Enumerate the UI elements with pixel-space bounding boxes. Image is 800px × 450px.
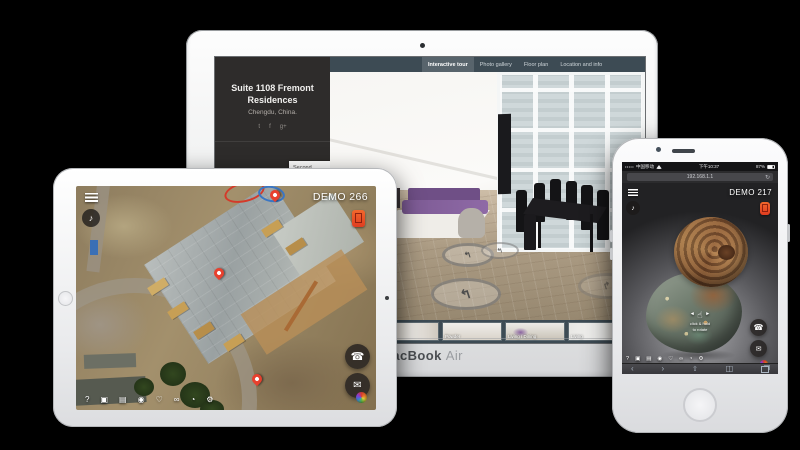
vr-goggles-icon[interactable]: ▣ <box>100 395 108 404</box>
signal-dots: ••••• <box>625 165 634 169</box>
phone-icon: ☎ <box>754 323 764 332</box>
settings-gear-icon[interactable]: ⚙ <box>206 395 213 404</box>
compass-icon[interactable]: ◔ <box>190 395 195 404</box>
webcam-dot <box>420 43 425 48</box>
volume-down-button[interactable] <box>610 248 613 260</box>
wifi-icon <box>656 165 662 169</box>
right-arrow-icon: ► <box>705 311 710 317</box>
ipad-camera-dot <box>385 296 389 300</box>
battery-icon <box>767 165 775 169</box>
hotspot-arrow-icon: ↰ <box>496 246 504 255</box>
site-shed <box>84 353 136 369</box>
nav-hotspot[interactable]: ↰ <box>431 278 501 310</box>
ipad-home-button[interactable] <box>58 291 73 306</box>
forward-icon[interactable]: › <box>661 365 664 373</box>
google-plus-icon[interactable]: g+ <box>280 124 287 130</box>
music-note-icon: ♪ <box>631 205 635 212</box>
tabs-icon[interactable] <box>761 366 769 373</box>
table-leg <box>590 214 593 252</box>
nav-hotspot[interactable]: ↰ <box>481 242 519 259</box>
color-sphere-icon[interactable] <box>356 392 367 403</box>
back-icon[interactable]: ‹ <box>631 365 634 373</box>
brand-text-light: Air <box>446 348 463 363</box>
phone-button[interactable]: ☎ <box>750 319 767 336</box>
iphone-speaker <box>672 149 695 153</box>
hand-pointer-icon: ☝ <box>697 310 702 320</box>
share-link-icon[interactable]: ∞ <box>174 395 180 404</box>
twitter-icon[interactable]: t <box>258 124 260 130</box>
vr-goggles-icon[interactable]: ▣ <box>635 356 640 362</box>
camera-icon[interactable]: ◉ <box>657 356 662 362</box>
phone-button[interactable]: ☎ <box>345 344 370 369</box>
dining-chair <box>524 214 536 250</box>
share-link-icon[interactable]: ∞ <box>679 356 683 362</box>
favorite-heart-icon[interactable]: ♡ <box>156 395 163 404</box>
sidebar-divider <box>215 141 330 142</box>
ram-horn-spiral <box>674 217 748 287</box>
clock-label: 下午10:37 <box>664 164 754 170</box>
hotspot-arrow-icon: ↰ <box>458 284 474 304</box>
tour-nav-bar: Interactive tour Photo gallery Floor pla… <box>330 57 645 72</box>
tab-interactive-tour[interactable]: Interactive tour <box>422 57 474 72</box>
truck <box>90 240 98 255</box>
iphone-device: ••••• 中国移动 下午10:37 87% 192.168.1.1 ↻ <box>612 138 788 433</box>
help-icon[interactable]: ? <box>626 356 629 362</box>
viewer-toolbar: ? ▣ ▤ ◉ ♡ ∞ ◔ ⚙ <box>626 356 703 362</box>
share-icon[interactable]: ⇧ <box>692 366 698 373</box>
music-note-icon: ♪ <box>89 213 94 223</box>
object-viewer[interactable]: ♪ DEMO 217 ◄ ☝ ► click & hold to rotate … <box>622 183 778 364</box>
menu-hamburger-icon[interactable] <box>628 189 638 196</box>
print-icon[interactable]: ▤ <box>119 395 127 404</box>
orange-marker-icon[interactable] <box>760 202 770 215</box>
menu-hamburger-icon[interactable] <box>85 193 98 202</box>
url-text: 192.168.1.1 <box>687 174 713 180</box>
print-icon[interactable]: ▤ <box>646 356 651 362</box>
hotspot-arrow-icon: ↱ <box>601 279 612 292</box>
tour-subtitle: Chengdu, China. <box>215 109 330 116</box>
sound-toggle-button[interactable]: ♪ <box>82 209 100 227</box>
compass-icon[interactable]: ◔ <box>689 356 692 362</box>
iphone-home-button[interactable] <box>683 388 717 422</box>
orange-marker-icon[interactable] <box>352 210 365 227</box>
tree <box>160 362 186 386</box>
iphone-screen: ••••• 中国移动 下午10:37 87% 192.168.1.1 ↻ <box>622 162 778 374</box>
viewer-toolbar: ? ▣ ▤ ◉ ♡ ∞ ◔ ⚙ <box>85 395 213 404</box>
status-bar: ••••• 中国移动 下午10:37 87% <box>622 162 778 171</box>
help-icon[interactable]: ? <box>85 395 89 404</box>
bookmarks-icon[interactable]: ◫ <box>726 365 734 373</box>
phone-icon: ☎ <box>351 350 365 363</box>
tour-title: Suite 1108 Fremont Residences <box>215 83 330 106</box>
envelope-icon: ✉ <box>353 380 361 391</box>
email-button[interactable]: ✉ <box>750 340 767 357</box>
safari-toolbar: ‹ › ⇧ ◫ <box>622 363 778 374</box>
ipad-screen[interactable]: ♪ DEMO 266 ☎ ✉ ? ▣ ▤ ◉ ♡ ∞ ◔ ⚙ <box>76 186 376 410</box>
tab-location-info[interactable]: Location and info <box>554 57 608 72</box>
battery-percent: 87% <box>756 164 765 169</box>
iphone-camera-dot <box>656 147 661 152</box>
stage: Suite 1108 Fremont Residences Chengdu, C… <box>0 0 800 450</box>
power-button[interactable] <box>787 224 790 242</box>
favorite-heart-icon[interactable]: ♡ <box>668 356 673 362</box>
demo-label: DEMO 266 <box>313 191 368 203</box>
spiral-core <box>718 245 735 260</box>
table-leg <box>538 218 541 248</box>
settings-gear-icon[interactable]: ⚙ <box>698 356 703 362</box>
armchair <box>458 208 485 238</box>
demo-label: DEMO 217 <box>729 188 772 197</box>
wall-art <box>498 114 511 194</box>
camera-icon[interactable]: ◉ <box>138 395 145 404</box>
ipad-device: ♪ DEMO 266 ☎ ✉ ? ▣ ▤ ◉ ♡ ∞ ◔ ⚙ <box>53 168 397 427</box>
tab-floor-plan[interactable]: Floor plan <box>518 57 554 72</box>
social-row: t f g+ <box>215 124 330 130</box>
carrier-label: 中国移动 <box>636 164 654 170</box>
facebook-icon[interactable]: f <box>269 124 271 130</box>
refresh-icon[interactable]: ↻ <box>765 174 770 181</box>
browser-address-bar: 192.168.1.1 ↻ <box>622 171 778 183</box>
tree <box>134 378 154 396</box>
envelope-icon: ✉ <box>756 345 762 353</box>
sound-toggle-button[interactable]: ♪ <box>626 201 640 215</box>
hotspot-arrow-icon: ↰ <box>463 249 474 262</box>
tab-photo-gallery[interactable]: Photo gallery <box>474 57 518 72</box>
url-field[interactable]: 192.168.1.1 ↻ <box>627 173 773 181</box>
left-arrow-icon: ◄ <box>690 311 695 317</box>
volume-up-button[interactable] <box>610 230 613 242</box>
